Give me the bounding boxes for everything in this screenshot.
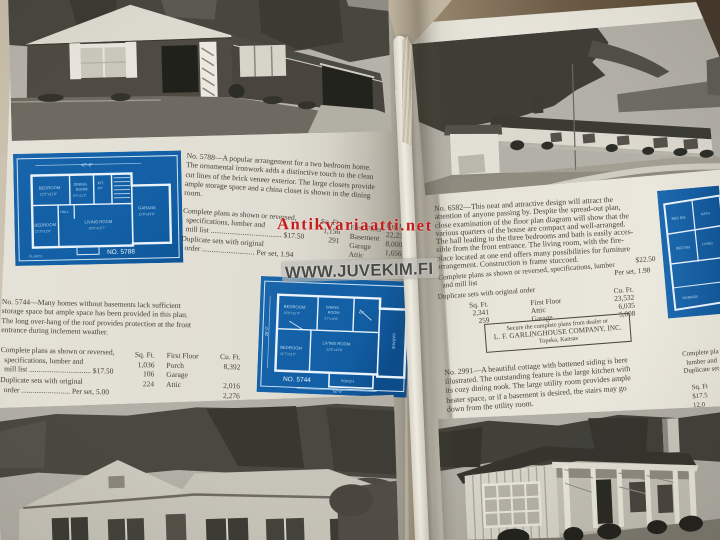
svg-text:PLANTS: PLANTS: [29, 254, 43, 258]
svg-text:12'2"x11'0": 12'2"x11'0": [40, 192, 58, 196]
svg-text:BEDROOM: BEDROOM: [284, 304, 306, 310]
svg-text:NO. 5744: NO. 5744: [283, 376, 311, 384]
svg-text:DINING: DINING: [74, 182, 87, 186]
svg-text:BEDROOM: BEDROOM: [39, 185, 61, 190]
svg-text:NO. 5788: NO. 5788: [107, 248, 135, 256]
svg-text:9'2"x11'2": 9'2"x11'2": [73, 193, 87, 197]
svg-text:KIT.: KIT.: [359, 311, 366, 315]
svg-text:10'0"x11'4": 10'0"x11'4": [284, 311, 301, 316]
svg-text:BATH: BATH: [701, 211, 711, 216]
svg-text:8'0": 8'0": [98, 186, 103, 190]
svg-text:LIVING ROOM: LIVING ROOM: [322, 340, 351, 346]
svg-text:DINING: DINING: [326, 306, 339, 311]
svg-text:52'-0": 52'-0": [333, 388, 344, 393]
svg-text:PORCH: PORCH: [341, 379, 355, 384]
svg-text:11'7"x11'6": 11'7"x11'6": [280, 352, 297, 357]
svg-text:22'6"x13'6": 22'6"x13'6": [326, 348, 344, 353]
svg-text:9'2"x10'6": 9'2"x10'6": [324, 316, 338, 321]
svg-text:GARAGE: GARAGE: [138, 205, 156, 210]
svg-text:LIVING ROOM: LIVING ROOM: [84, 219, 113, 225]
svg-text:KIT.: KIT.: [98, 181, 105, 185]
svg-text:20'6"x13'7": 20'6"x13'7": [89, 226, 107, 230]
svg-text:BEDROOM: BEDROOM: [34, 222, 56, 227]
svg-text:ROOM: ROOM: [328, 311, 340, 315]
svg-text:HALL: HALL: [60, 210, 69, 214]
svg-text:28'-0": 28'-0": [264, 325, 269, 336]
svg-text:12'3"x12'6": 12'3"x12'6": [35, 229, 53, 233]
svg-text:ROOM: ROOM: [76, 187, 88, 191]
svg-text:GARAGE: GARAGE: [391, 333, 396, 350]
svg-text:12'8"x24'0": 12'8"x24'0": [138, 212, 156, 216]
svg-text:47'-8": 47'-8": [81, 162, 93, 167]
svg-text:BEDROOM: BEDROOM: [280, 345, 302, 351]
